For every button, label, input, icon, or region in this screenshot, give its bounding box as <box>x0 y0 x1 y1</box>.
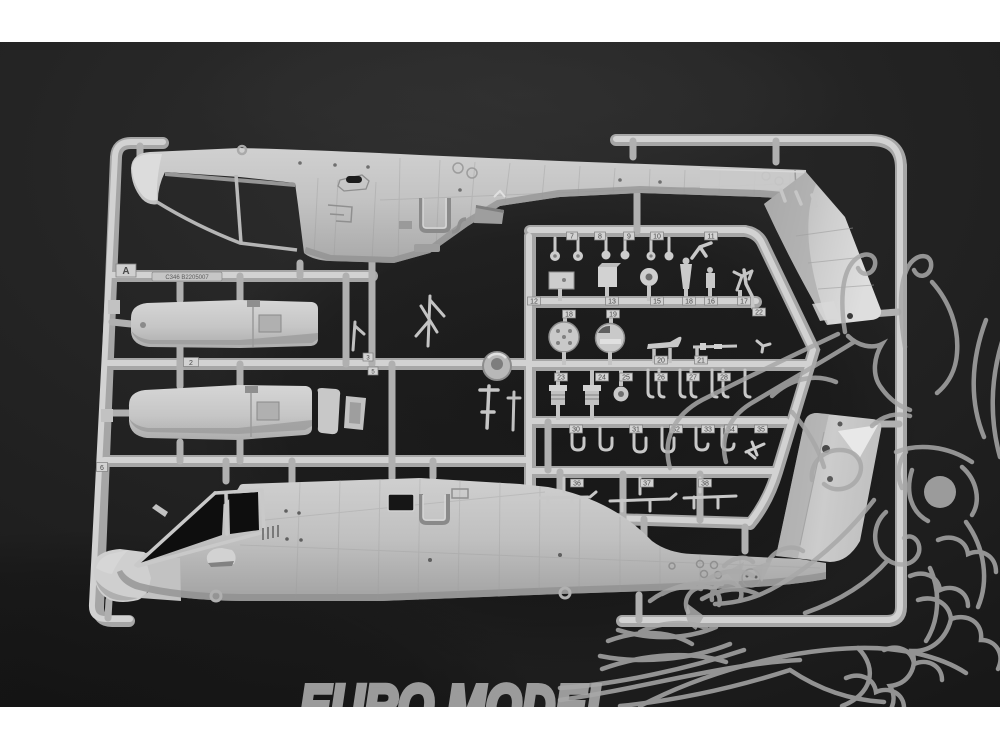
svg-text:C346 B2205007: C346 B2205007 <box>165 275 209 281</box>
svg-text:16: 16 <box>707 298 715 305</box>
svg-text:38: 38 <box>701 480 709 487</box>
svg-text:18: 18 <box>685 298 693 305</box>
svg-text:25: 25 <box>622 374 630 381</box>
svg-text:17: 17 <box>740 298 748 305</box>
svg-text:11: 11 <box>707 233 714 240</box>
svg-text:8: 8 <box>598 233 602 240</box>
svg-text:31: 31 <box>632 426 640 433</box>
svg-text:26: 26 <box>657 374 665 381</box>
svg-text:19: 19 <box>609 311 617 318</box>
svg-text:15: 15 <box>653 298 661 305</box>
svg-text:10: 10 <box>653 233 661 240</box>
svg-text:21: 21 <box>697 357 705 364</box>
svg-text:12: 12 <box>530 298 538 305</box>
svg-text:9: 9 <box>627 233 631 240</box>
svg-text:35: 35 <box>757 426 765 433</box>
svg-text:37: 37 <box>643 480 651 487</box>
svg-text:28: 28 <box>720 374 728 381</box>
svg-text:6: 6 <box>100 465 104 472</box>
svg-text:36: 36 <box>573 480 581 487</box>
svg-text:20: 20 <box>657 357 665 364</box>
svg-text:A: A <box>122 266 129 277</box>
svg-text:30: 30 <box>572 426 580 433</box>
svg-text:7: 7 <box>570 233 574 240</box>
svg-text:18: 18 <box>565 311 573 318</box>
svg-text:27: 27 <box>689 374 697 381</box>
svg-text:13: 13 <box>608 298 616 305</box>
svg-text:2: 2 <box>189 360 193 367</box>
svg-text:23: 23 <box>557 374 565 381</box>
svg-text:33: 33 <box>704 426 712 433</box>
svg-text:22: 22 <box>755 309 763 316</box>
svg-text:24: 24 <box>598 374 606 381</box>
